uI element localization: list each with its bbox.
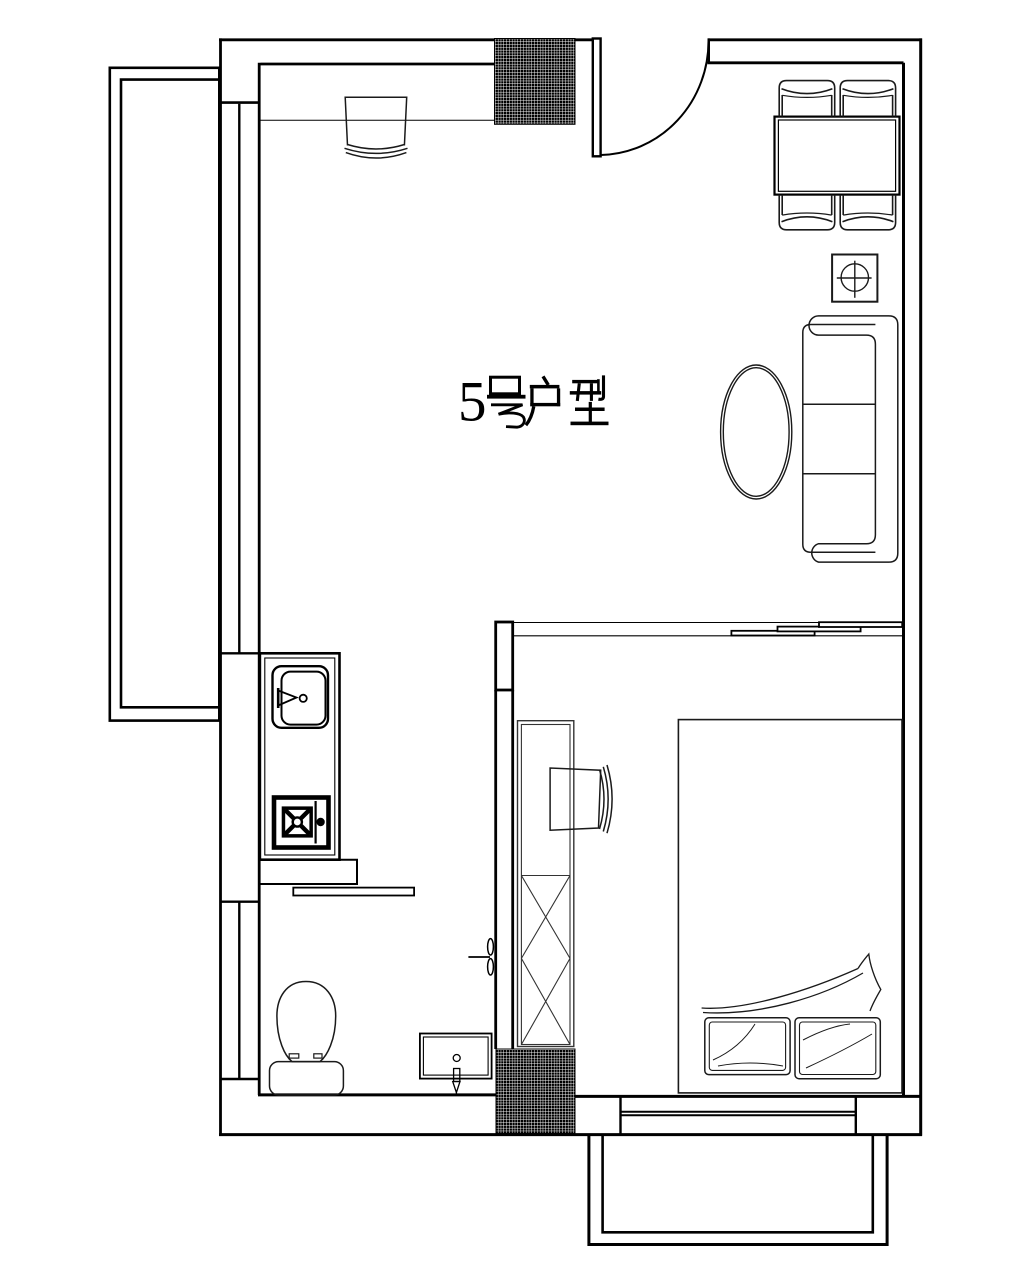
svg-text:5: 5 <box>458 371 487 434</box>
